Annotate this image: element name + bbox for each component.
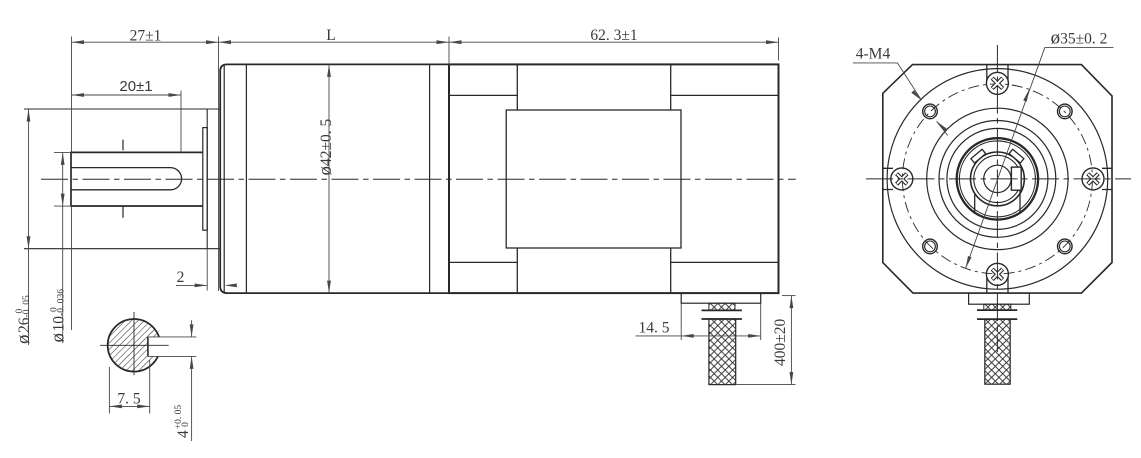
svg-text:400±20: 400±20 [772,318,789,366]
svg-text:27±1: 27±1 [130,28,162,45]
svg-text:L: L [326,27,335,44]
svg-text:4-M4: 4-M4 [856,46,891,63]
svg-text:14. 5: 14. 5 [639,319,670,336]
svg-text:7. 5: 7. 5 [117,391,141,408]
svg-text:62. 3±1: 62. 3±1 [590,27,637,44]
svg-text:ø42±0. 5: ø42±0. 5 [315,118,336,175]
svg-text:2: 2 [177,269,185,286]
svg-text:ø35±0. 2: ø35±0. 2 [1051,28,1108,49]
svg-text:20±1: 20±1 [119,78,152,95]
